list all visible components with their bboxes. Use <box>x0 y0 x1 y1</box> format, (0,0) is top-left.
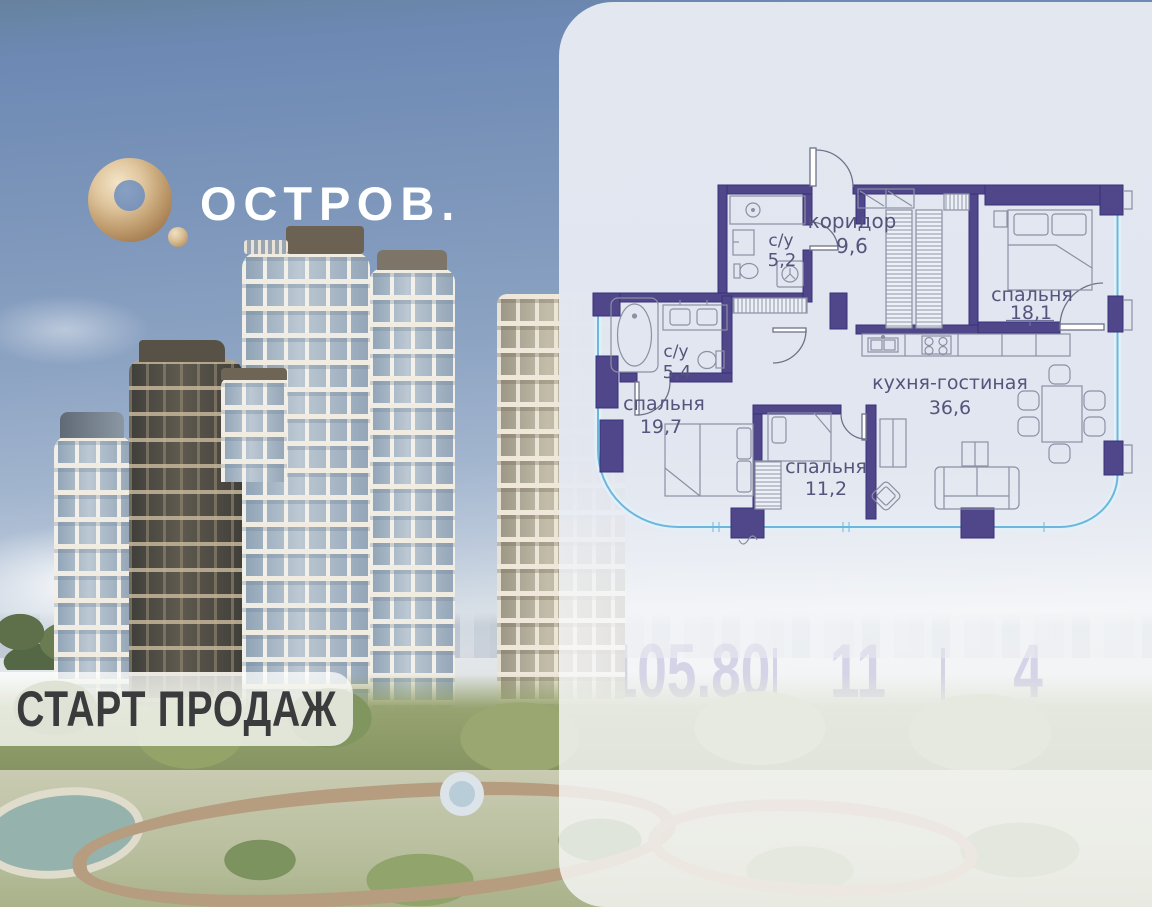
brand-name: ОСТРОВ. <box>200 176 520 231</box>
playground <box>440 772 484 816</box>
sales-badge-label: СТАРТ ПРОДАЖ <box>16 680 337 738</box>
info-card <box>559 2 1152 907</box>
logo-dot-icon <box>168 227 188 247</box>
gold-ring-logo-icon <box>88 158 172 242</box>
promo-banner: с/у 5,2 коридор 9,6 спальня 18,1 с/у 5,4… <box>0 0 1152 907</box>
sales-badge: СТАРТ ПРОДАЖ <box>0 672 353 746</box>
building-low-block <box>221 378 287 482</box>
